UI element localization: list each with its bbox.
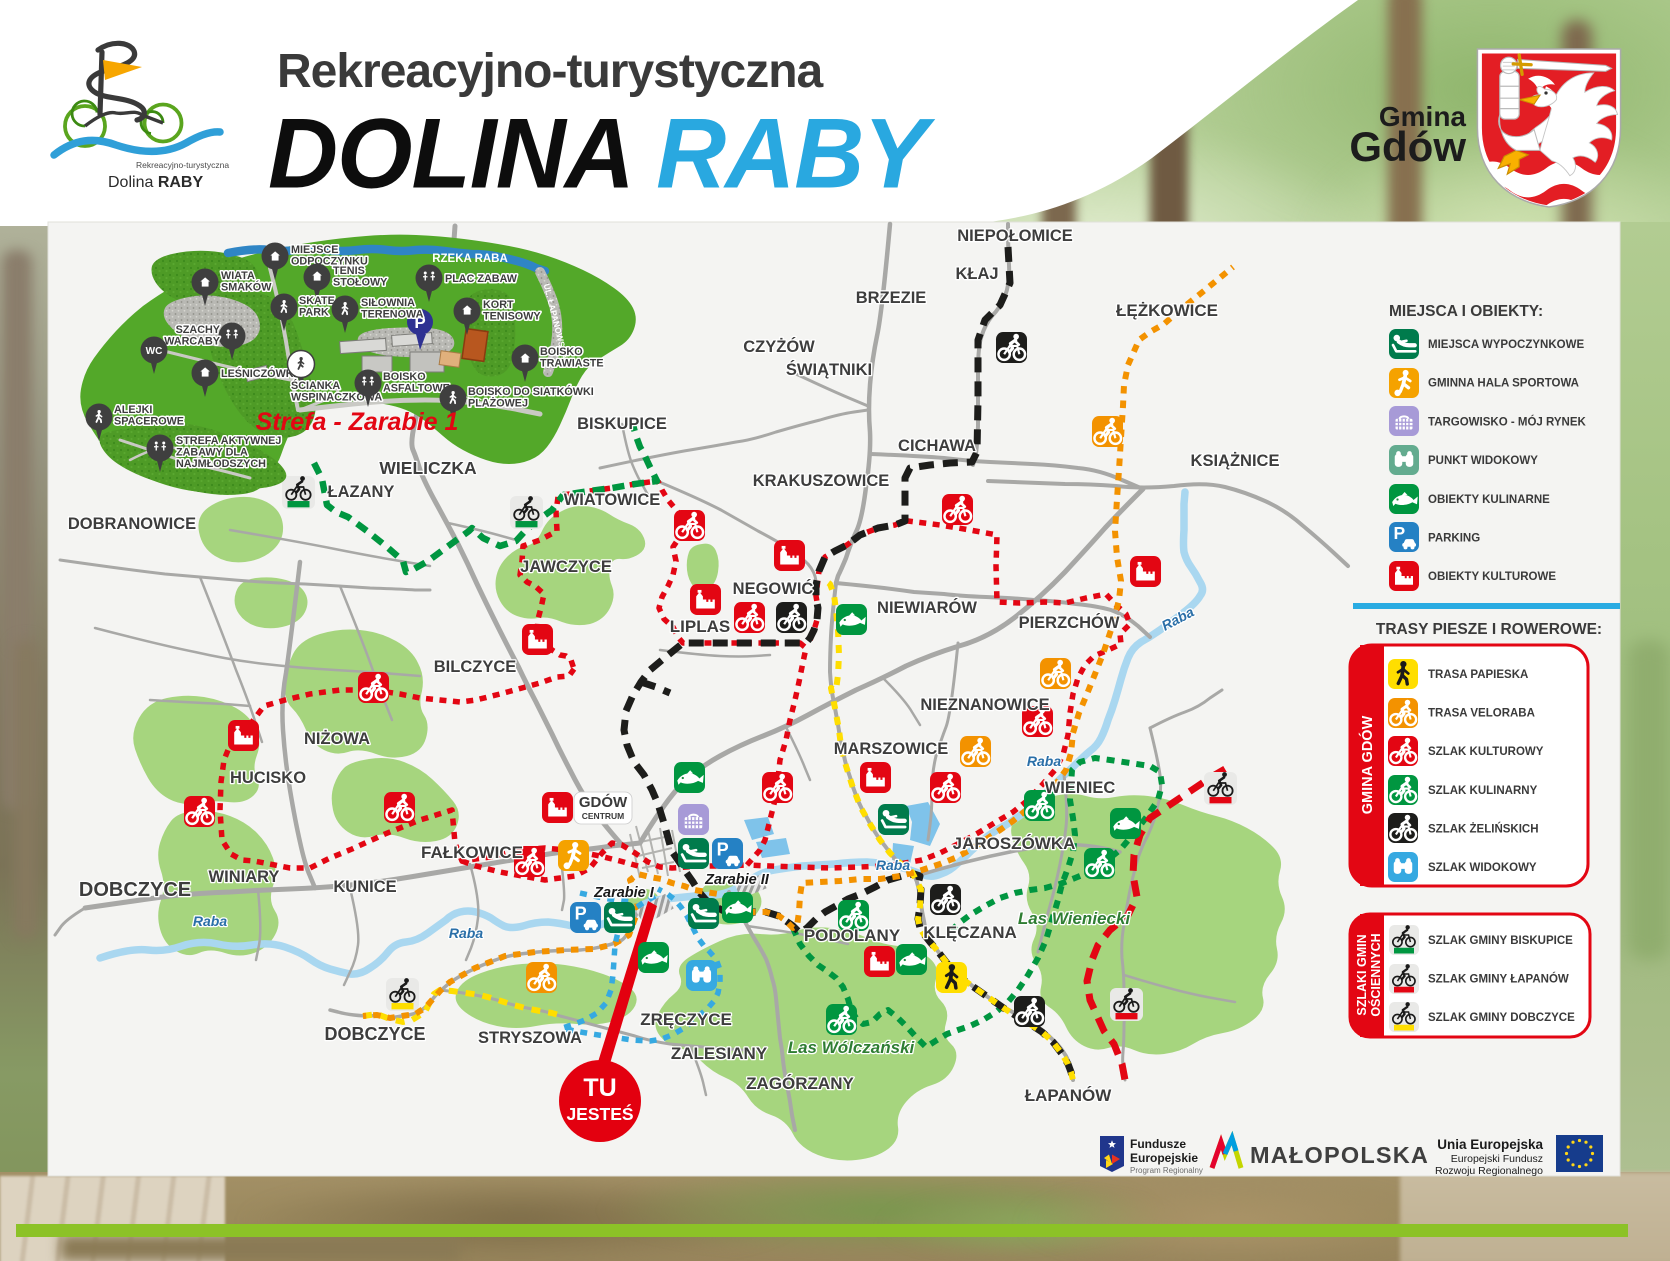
svg-text:MAŁOPOLSKA: MAŁOPOLSKA [1250,1142,1429,1168]
svg-text:CICHAWA: CICHAWA [898,437,976,455]
svg-text:Raba: Raba [449,925,483,941]
svg-text:KSIĄŻNICE: KSIĄŻNICE [1191,452,1280,470]
svg-text:MIEJSCE: MIEJSCE [291,244,338,256]
svg-text:Rekreacyjno-turystyczna: Rekreacyjno-turystyczna [136,160,229,170]
svg-text:PODOLANY: PODOLANY [804,926,901,945]
svg-text:SKATE: SKATE [299,295,335,307]
svg-text:KRAKUSZOWICE: KRAKUSZOWICE [753,472,890,490]
svg-text:Las Wólczański: Las Wólczański [788,1038,916,1057]
svg-text:JAWCZYCE: JAWCZYCE [520,558,612,576]
svg-text:CENTRUM: CENTRUM [582,811,625,821]
svg-text:HUCISKO: HUCISKO [230,769,306,787]
svg-text:Raba: Raba [876,857,910,873]
svg-text:ZALESIANY: ZALESIANY [671,1044,768,1063]
svg-text:BISKUPICE: BISKUPICE [577,415,667,433]
svg-text:PIERZCHÓW: PIERZCHÓW [1019,613,1120,632]
svg-text:Las Wieniecki: Las Wieniecki [1018,909,1132,928]
svg-text:OBIEKTY KULINARNE: OBIEKTY KULINARNE [1428,494,1550,506]
svg-text:NAJMŁODSZYCH: NAJMŁODSZYCH [176,458,266,470]
svg-text:WIATOWICE: WIATOWICE [564,491,661,509]
svg-text:BOISKO: BOISKO [540,346,583,358]
svg-text:WIENIEC: WIENIEC [1045,779,1116,797]
svg-text:Unia Europejska: Unia Europejska [1437,1137,1543,1152]
svg-text:ALEJKI: ALEJKI [114,404,152,416]
svg-text:TENIS: TENIS [333,265,365,277]
svg-text:SZLAKI GMIN: SZLAKI GMIN [1355,934,1369,1015]
svg-text:NEGOWIĆ: NEGOWIĆ [733,579,814,598]
svg-text:STRYSZOWA: STRYSZOWA [478,1029,582,1047]
svg-text:ŚCIANKA: ŚCIANKA [291,379,340,392]
svg-text:PLAŻOWEJ: PLAŻOWEJ [468,397,528,410]
svg-text:BOISKO DO SIATKÓWKI: BOISKO DO SIATKÓWKI [468,385,594,398]
svg-text:GMINA GDÓW: GMINA GDÓW [1358,715,1376,814]
svg-text:ASFALTOWE: ASFALTOWE [383,383,450,395]
svg-text:PLAC ZABAW: PLAC ZABAW [445,273,518,285]
svg-text:ZAGÓRZANY: ZAGÓRZANY [746,1074,854,1093]
svg-text:Zarabie II: Zarabie II [704,872,770,888]
svg-text:SZLAK GMINY ŁAPANÓW: SZLAK GMINY ŁAPANÓW [1428,973,1569,986]
svg-text:WIELICZKA: WIELICZKA [379,458,477,478]
svg-text:GMINNA HALA SPORTOWA: GMINNA HALA SPORTOWA [1428,378,1579,390]
svg-text:WINIARY: WINIARY [209,868,280,886]
svg-text:NIEPOŁOMICE: NIEPOŁOMICE [957,227,1073,245]
svg-text:SIŁOWNIA: SIŁOWNIA [361,297,415,309]
svg-text:Dolina RABY: Dolina RABY [108,174,203,191]
svg-text:SZLAK KULINARNY: SZLAK KULINARNY [1428,785,1538,797]
svg-text:PARKING: PARKING [1428,533,1480,545]
svg-text:TENISOWY: TENISOWY [483,311,541,323]
svg-text:KLĘCZANA: KLĘCZANA [923,923,1017,942]
svg-text:SZLAK KULTUROWY: SZLAK KULTUROWY [1428,746,1544,758]
svg-text:TERENOWA: TERENOWA [361,309,424,321]
svg-text:CZYŻÓW: CZYŻÓW [743,337,815,356]
svg-text:ZRĘCZYCE: ZRĘCZYCE [640,1010,732,1029]
svg-text:Zarabie I: Zarabie I [593,885,655,901]
svg-text:JESTEŚ: JESTEŚ [566,1103,633,1124]
svg-text:KUNICE: KUNICE [333,878,396,896]
svg-text:PARK: PARK [299,307,329,319]
svg-text:Europejski Fundusz: Europejski Fundusz [1451,1153,1543,1165]
svg-text:ŚWIĄTNIKI: ŚWIĄTNIKI [786,360,872,379]
svg-text:NIŻOWA: NIŻOWA [304,730,370,748]
svg-text:LIPLAS: LIPLAS [670,617,730,636]
svg-text:Program Regionalny: Program Regionalny [1130,1166,1203,1175]
svg-text:TARGOWISKO - MÓJ RYNEK: TARGOWISKO - MÓJ RYNEK [1428,415,1587,428]
svg-text:JAROSZÓWKA: JAROSZÓWKA [953,834,1076,853]
svg-text:NIEWIARÓW: NIEWIARÓW [877,598,977,617]
svg-text:Raba: Raba [193,913,227,929]
svg-text:OŚCIENNYCH: OŚCIENNYCH [1368,933,1383,1016]
svg-text:TRASA VELORABA: TRASA VELORABA [1428,708,1535,720]
svg-text:DOBCZYCE: DOBCZYCE [324,1024,425,1044]
svg-text:ŁĘŻKOWICE: ŁĘŻKOWICE [1116,301,1218,320]
svg-text:TRASA PAPIESKA: TRASA PAPIESKA [1428,669,1528,681]
svg-text:TRAWIASTE: TRAWIASTE [540,358,604,370]
svg-text:NIEZNANOWICE: NIEZNANOWICE [920,696,1049,714]
svg-text:MIEJSCA WYPOCZYNKOWE: MIEJSCA WYPOCZYNKOWE [1428,339,1584,351]
svg-text:FAŁKOWICE: FAŁKOWICE [421,843,523,862]
svg-text:SMAKÓW: SMAKÓW [221,281,272,294]
svg-text:DOBRANOWICE: DOBRANOWICE [68,515,196,533]
svg-text:Raba: Raba [1027,753,1061,769]
svg-text:KŁAJ: KŁAJ [955,265,998,283]
svg-text:TRASY PIESZE I ROWEROWE:: TRASY PIESZE I ROWEROWE: [1376,621,1602,638]
svg-text:WARCABY: WARCABY [164,336,221,348]
svg-text:ŁAPANÓW: ŁAPANÓW [1025,1086,1113,1105]
svg-text:PUNKT WIDOKOWY: PUNKT WIDOKOWY [1428,455,1538,467]
svg-text:SZLAK WIDOKOWY: SZLAK WIDOKOWY [1428,862,1537,874]
svg-text:KORT: KORT [483,299,514,311]
svg-text:SPACEROWE: SPACEROWE [114,416,184,428]
svg-text:STOŁOWY: STOŁOWY [333,277,388,289]
svg-text:Rozwoju Regionalnego: Rozwoju Regionalnego [1435,1165,1543,1177]
svg-text:ZABAWY DLA: ZABAWY DLA [176,447,248,459]
svg-text:Europejskie: Europejskie [1130,1151,1198,1165]
svg-text:TU: TU [583,1074,616,1102]
svg-text:MARSZOWICE: MARSZOWICE [834,740,949,758]
svg-text:BRZEZIE: BRZEZIE [856,289,927,307]
svg-text:MIEJSCA I OBIEKTY:: MIEJSCA I OBIEKTY: [1389,303,1543,320]
svg-text:WIATA: WIATA [221,270,255,282]
svg-text:STREFA AKTYWNEJ: STREFA AKTYWNEJ [176,435,281,447]
svg-text:RZEKA RABA: RZEKA RABA [432,253,508,265]
svg-text:ŁAZANY: ŁAZANY [328,483,395,501]
svg-text:SZLAK GMINY BISKUPICE: SZLAK GMINY BISKUPICE [1428,935,1573,947]
svg-text:DOBCZYCE: DOBCZYCE [79,879,191,901]
svg-text:OBIEKTY KULTUROWE: OBIEKTY KULTUROWE [1428,571,1556,583]
svg-text:BILCZYCE: BILCZYCE [434,658,517,676]
svg-text:SZACHY: SZACHY [176,324,221,336]
svg-text:BOISKO: BOISKO [383,371,426,383]
svg-text:Strefa - Zarabie 1: Strefa - Zarabie 1 [256,408,459,436]
svg-text:GDÓW: GDÓW [579,793,628,811]
svg-text:SZLAK GMINY DOBCZYCE: SZLAK GMINY DOBCZYCE [1428,1012,1575,1024]
svg-text:WC: WC [146,346,163,357]
svg-text:Fundusze: Fundusze [1130,1137,1186,1151]
svg-text:SZLAK ŻELIŃSKICH: SZLAK ŻELIŃSKICH [1428,822,1539,835]
